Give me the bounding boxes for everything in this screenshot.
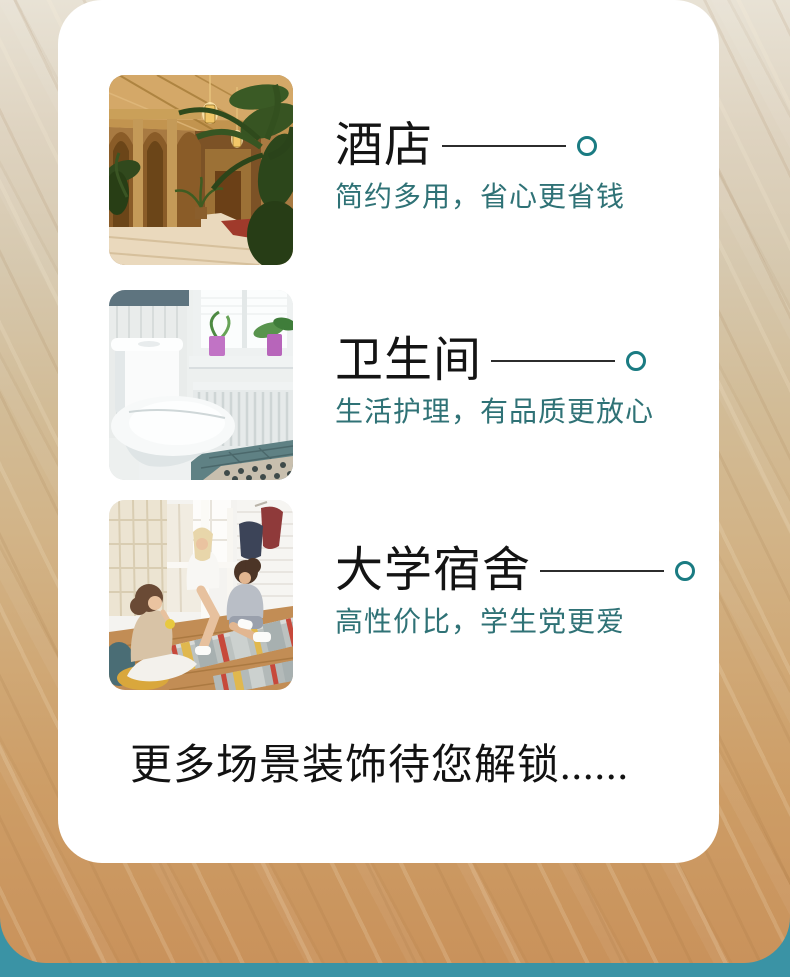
title-row: 大学宿舍 (335, 542, 695, 600)
title-row: 酒店 (335, 117, 625, 175)
dorm-students-photo (109, 500, 293, 690)
circle-marker-icon (675, 561, 695, 581)
scene-title-dorm: 大学宿舍 (335, 542, 531, 600)
hotel-lobby-photo (109, 75, 293, 265)
bottom-accent-bar (0, 963, 790, 977)
circle-marker-icon (577, 136, 597, 156)
scene-info-dorm: 大学宿舍 高性价比，学生党更爱 (335, 500, 695, 639)
scene-info-bathroom: 卫生间 生活护理，有品质更放心 (335, 290, 654, 429)
scene-title-hotel: 酒店 (335, 117, 433, 175)
dorm-photo (109, 500, 293, 690)
scene-section-hotel: 酒店 简约多用，省心更省钱 (109, 75, 625, 265)
scene-subtitle-hotel: 简约多用，省心更省钱 (335, 182, 625, 214)
bathroom-toilet-photo (109, 290, 293, 480)
hotel-photo (109, 75, 293, 265)
scene-title-bathroom: 卫生间 (335, 332, 482, 390)
footer-heading: 更多场景装饰待您解锁...... (130, 738, 629, 794)
content-card: 酒店 简约多用，省心更省钱 (58, 0, 719, 863)
scene-info-hotel: 酒店 简约多用，省心更省钱 (335, 75, 625, 214)
scene-subtitle-dorm: 高性价比，学生党更爱 (335, 607, 695, 639)
title-rule-line (540, 570, 664, 572)
title-rule-line (442, 145, 566, 147)
circle-marker-icon (626, 351, 646, 371)
title-row: 卫生间 (335, 332, 654, 390)
scene-section-bathroom: 卫生间 生活护理，有品质更放心 (109, 290, 654, 480)
scene-section-dorm: 大学宿舍 高性价比，学生党更爱 (109, 500, 695, 690)
scene-subtitle-bathroom: 生活护理，有品质更放心 (335, 397, 654, 429)
bathroom-photo (109, 290, 293, 480)
title-rule-line (491, 360, 615, 362)
